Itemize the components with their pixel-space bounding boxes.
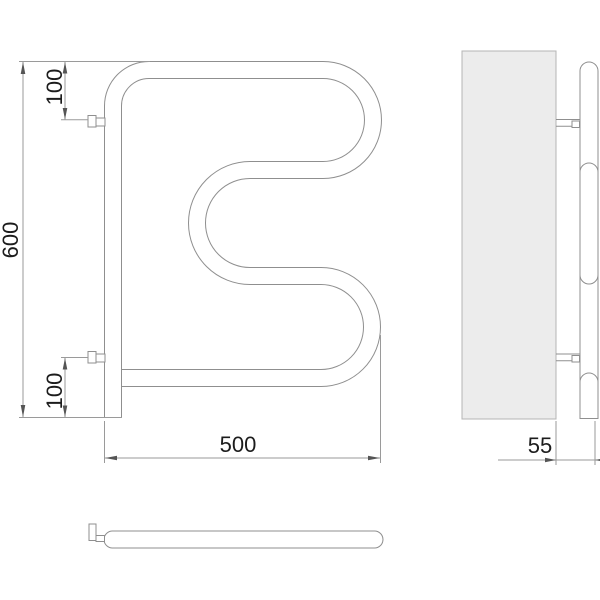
bracket-arm: [96, 536, 105, 542]
front-top-bracket: [88, 116, 105, 128]
arrow-depth-left: [545, 458, 556, 462]
arrow-width-left: [105, 456, 117, 461]
bottom-view-bracket: [89, 524, 105, 542]
arrow-top-offset-down: [63, 108, 68, 120]
bracket-arm: [96, 118, 105, 126]
arrow-depth-right: [595, 458, 600, 462]
dim-text-height: 600: [0, 222, 23, 259]
front-view: [88, 70, 373, 418]
bracket-plate: [572, 356, 580, 363]
front-bottom-bracket: [88, 352, 105, 364]
bottom-tube-capsule: [104, 531, 383, 548]
side-view: [462, 51, 598, 419]
arrow-height-bottom: [21, 405, 26, 417]
side-bottom-bracket: [556, 354, 581, 362]
bracket-plate: [572, 121, 580, 128]
bracket-plate: [88, 116, 96, 128]
arrow-bottom-offset-up: [63, 358, 68, 370]
bottom-view: [89, 524, 383, 548]
arrow-height-top: [21, 62, 26, 74]
bracket-plate: [89, 524, 96, 541]
side-top-bracket: [556, 120, 581, 128]
front-tube-outline-inner: [113, 70, 373, 418]
dim-text-depth: 55: [528, 433, 552, 458]
technical-drawing-page: 600 100 100 500 55: [0, 0, 600, 600]
bracket-plate: [88, 352, 96, 364]
technical-drawing-canvas: 600 100 100 500 55: [0, 0, 600, 600]
wall-panel: [462, 51, 556, 419]
dim-text-bottom-offset: 100: [42, 373, 67, 410]
arrow-width-right: [368, 456, 380, 461]
front-tube-outline-outer: [113, 70, 373, 418]
bracket-arm: [96, 354, 105, 362]
side-tube-profile: [580, 62, 598, 419]
dim-text-width: 500: [220, 432, 257, 457]
dim-text-top-offset: 100: [42, 69, 67, 106]
